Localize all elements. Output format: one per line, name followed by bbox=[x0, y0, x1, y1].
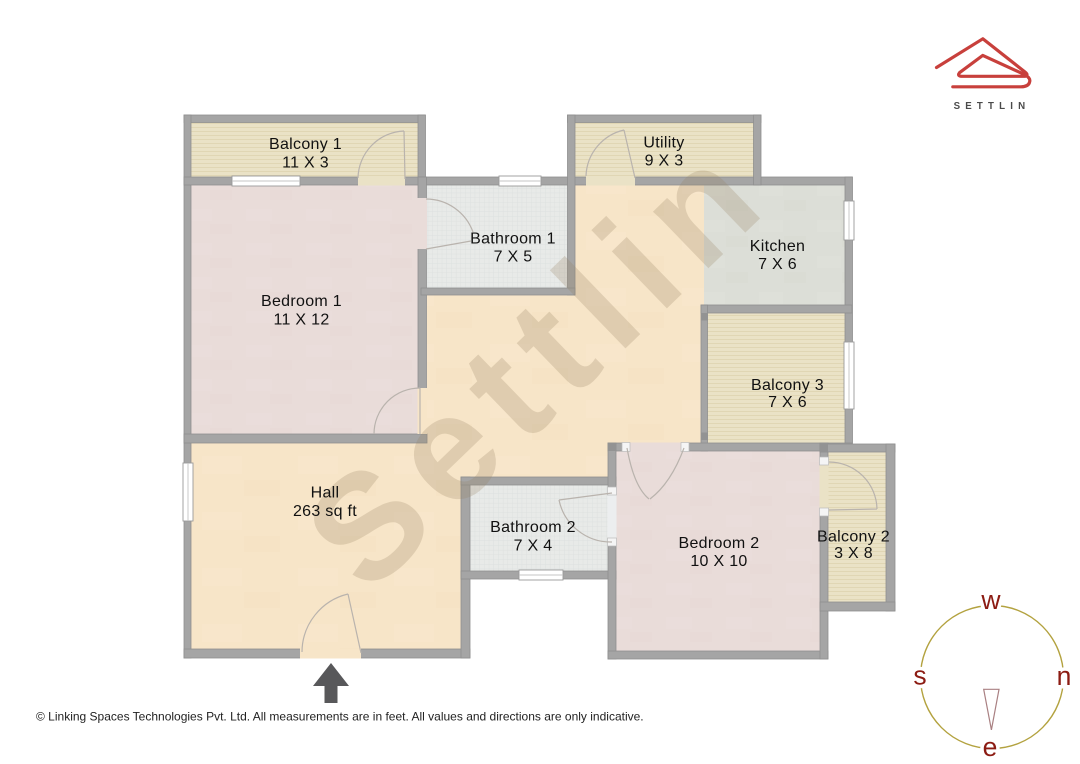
svg-text:Bedroom 2: Bedroom 2 bbox=[679, 535, 760, 552]
svg-text:SETTLIN: SETTLIN bbox=[954, 101, 1031, 112]
svg-text:11 X 3: 11 X 3 bbox=[282, 155, 329, 172]
svg-text:9 X 3: 9 X 3 bbox=[645, 153, 684, 170]
svg-text:Balcony 3: Balcony 3 bbox=[751, 377, 824, 394]
svg-text:Balcony 1: Balcony 1 bbox=[269, 136, 342, 153]
svg-text:Kitchen: Kitchen bbox=[750, 238, 805, 255]
svg-text:Hall: Hall bbox=[311, 485, 340, 502]
svg-text:7 X 6: 7 X 6 bbox=[758, 256, 797, 273]
svg-text:Utility: Utility bbox=[643, 135, 684, 152]
svg-text:e: e bbox=[983, 732, 998, 762]
svg-text:Bathroom 2: Bathroom 2 bbox=[490, 519, 576, 536]
svg-text:7 X 6: 7 X 6 bbox=[768, 394, 807, 411]
svg-text:© Linking Spaces Technologies: © Linking Spaces Technologies Pvt. Ltd. … bbox=[36, 710, 644, 724]
svg-text:w: w bbox=[980, 585, 1001, 615]
svg-text:s: s bbox=[913, 661, 926, 691]
svg-text:Bathroom 1: Bathroom 1 bbox=[470, 231, 556, 248]
svg-text:11 X 12: 11 X 12 bbox=[273, 312, 329, 329]
svg-text:7 X 5: 7 X 5 bbox=[494, 249, 533, 266]
svg-text:3 X 8: 3 X 8 bbox=[834, 545, 873, 562]
svg-text:Balcony 2: Balcony 2 bbox=[817, 529, 890, 546]
svg-text:Bedroom 1: Bedroom 1 bbox=[261, 293, 342, 310]
svg-text:10 X 10: 10 X 10 bbox=[690, 553, 747, 570]
svg-text:263 sq ft: 263 sq ft bbox=[293, 503, 357, 520]
svg-text:7 X 4: 7 X 4 bbox=[514, 538, 553, 555]
svg-text:n: n bbox=[1057, 661, 1072, 691]
